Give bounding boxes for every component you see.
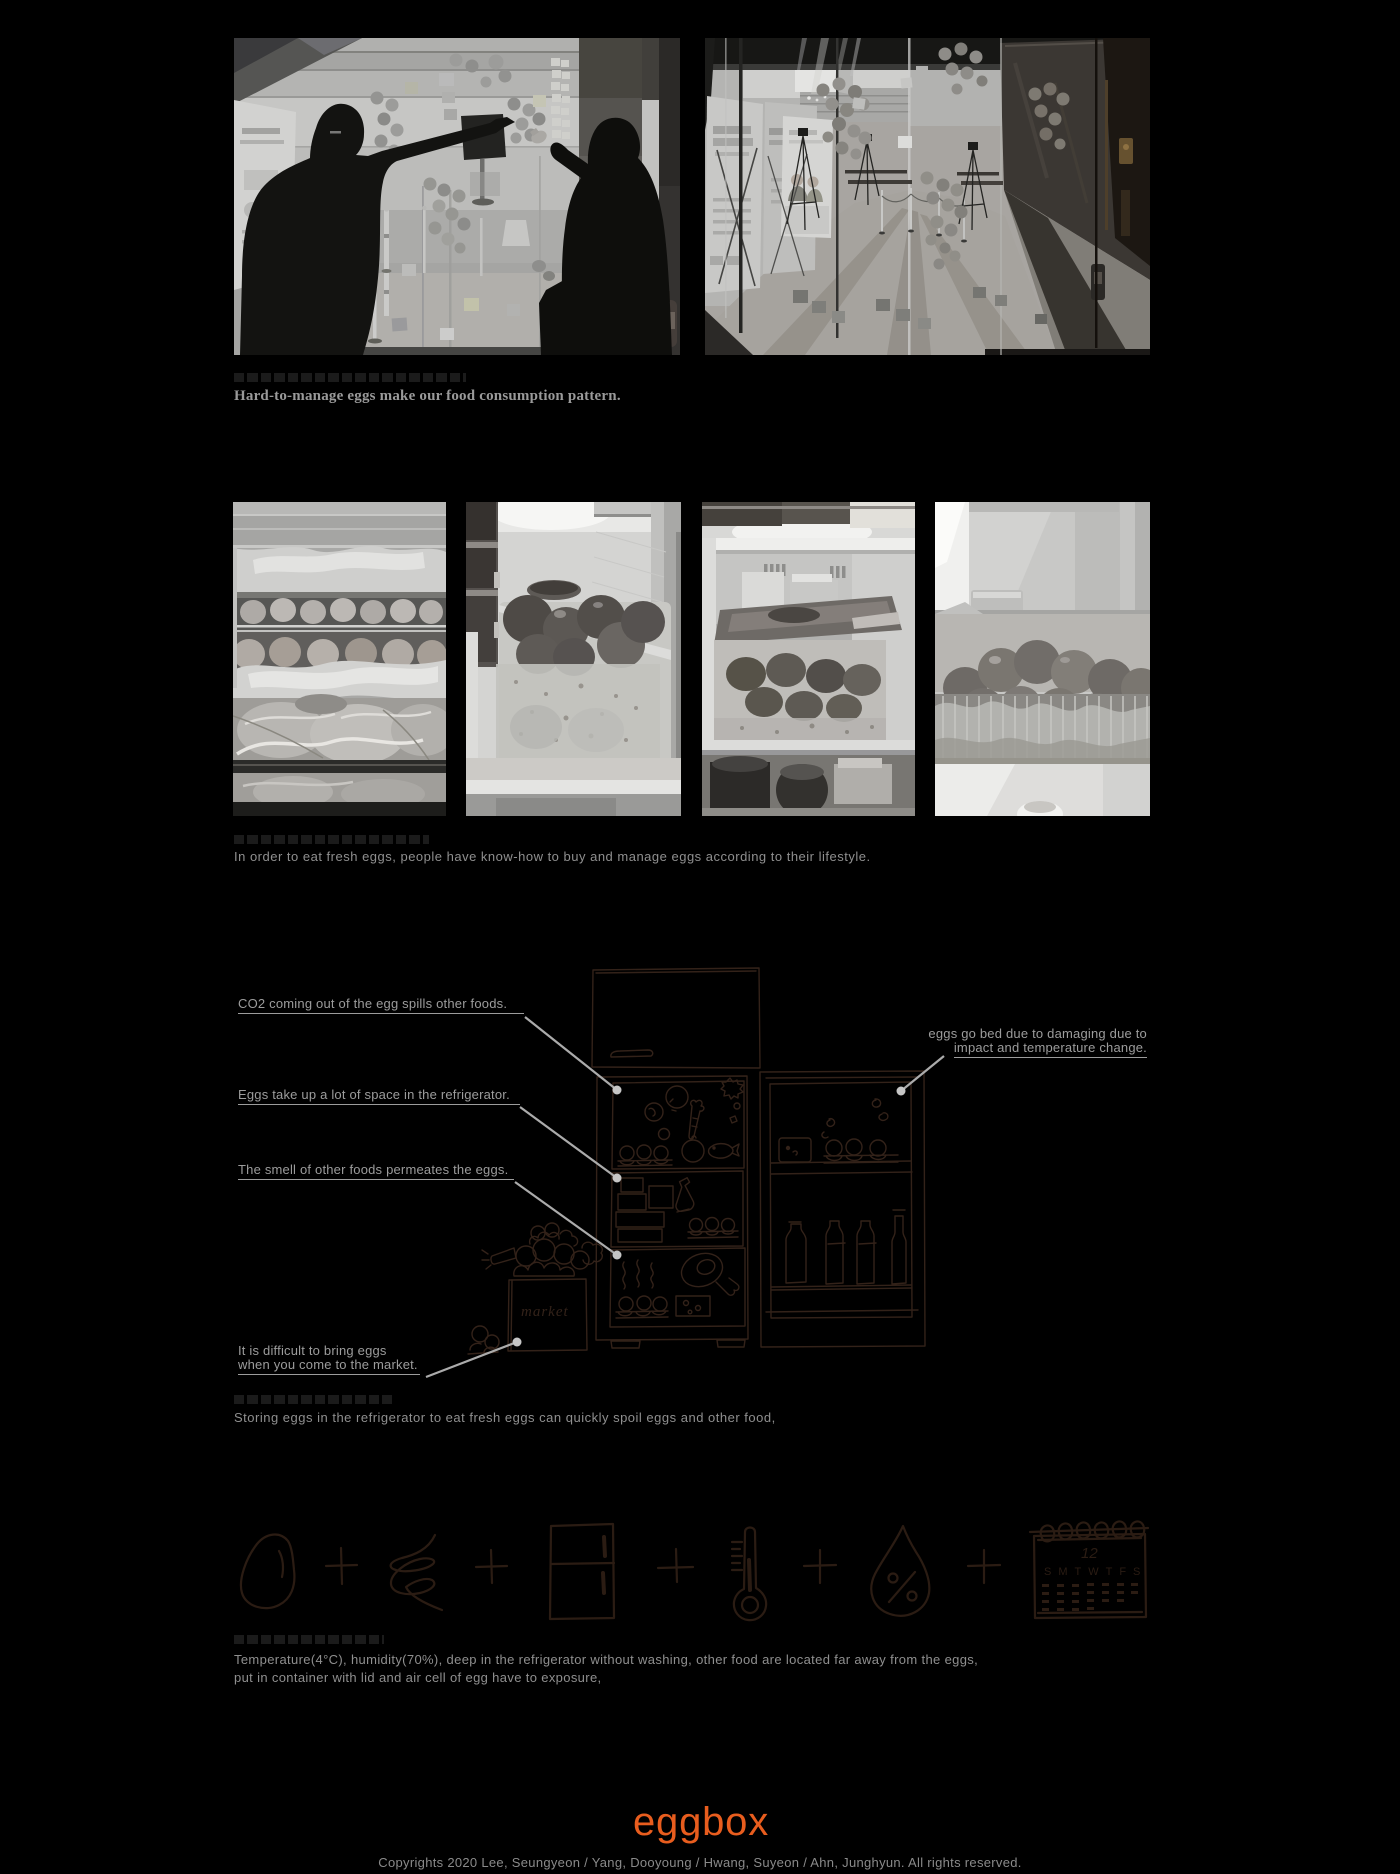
svg-text:market: market: [521, 1304, 569, 1320]
svg-text:12: 12: [1081, 1545, 1098, 1562]
svg-text:SMTWTFS: SMTWTFS: [1044, 1566, 1147, 1578]
